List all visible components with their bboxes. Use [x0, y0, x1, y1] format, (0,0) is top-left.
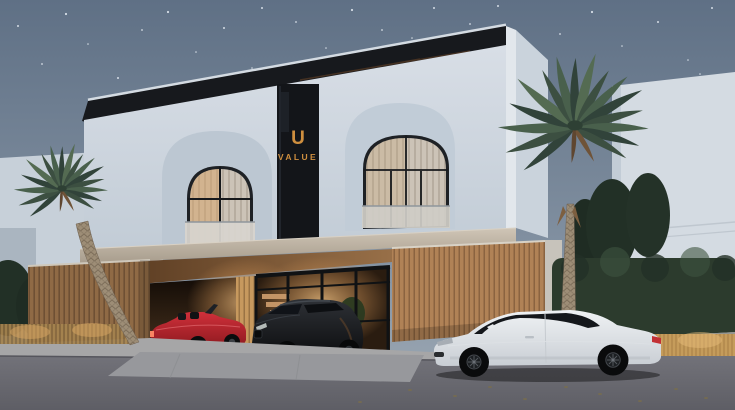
- ornamental-grass-left: [0, 323, 130, 344]
- coupe-front-wheel: [459, 347, 489, 377]
- logo-u-glyph: U: [291, 128, 305, 149]
- convertible-tail-light: [150, 331, 154, 337]
- villa-render-scene: U VALUE: [0, 0, 735, 410]
- convertible-seat: [190, 312, 199, 319]
- logo-value-text: VALUE: [278, 152, 318, 162]
- convertible-seat: [178, 313, 186, 320]
- logo-glazing-strip: U VALUE: [277, 84, 319, 244]
- coupe-door-handle: [525, 336, 534, 338]
- suv-grille: [254, 330, 262, 338]
- scene-canvas: U VALUE: [0, 0, 735, 410]
- coupe-rear-wheel: [598, 345, 629, 376]
- balcony-balustrade-right: [362, 206, 450, 228]
- side-return-face: [516, 30, 548, 238]
- coupe-intake: [434, 352, 444, 357]
